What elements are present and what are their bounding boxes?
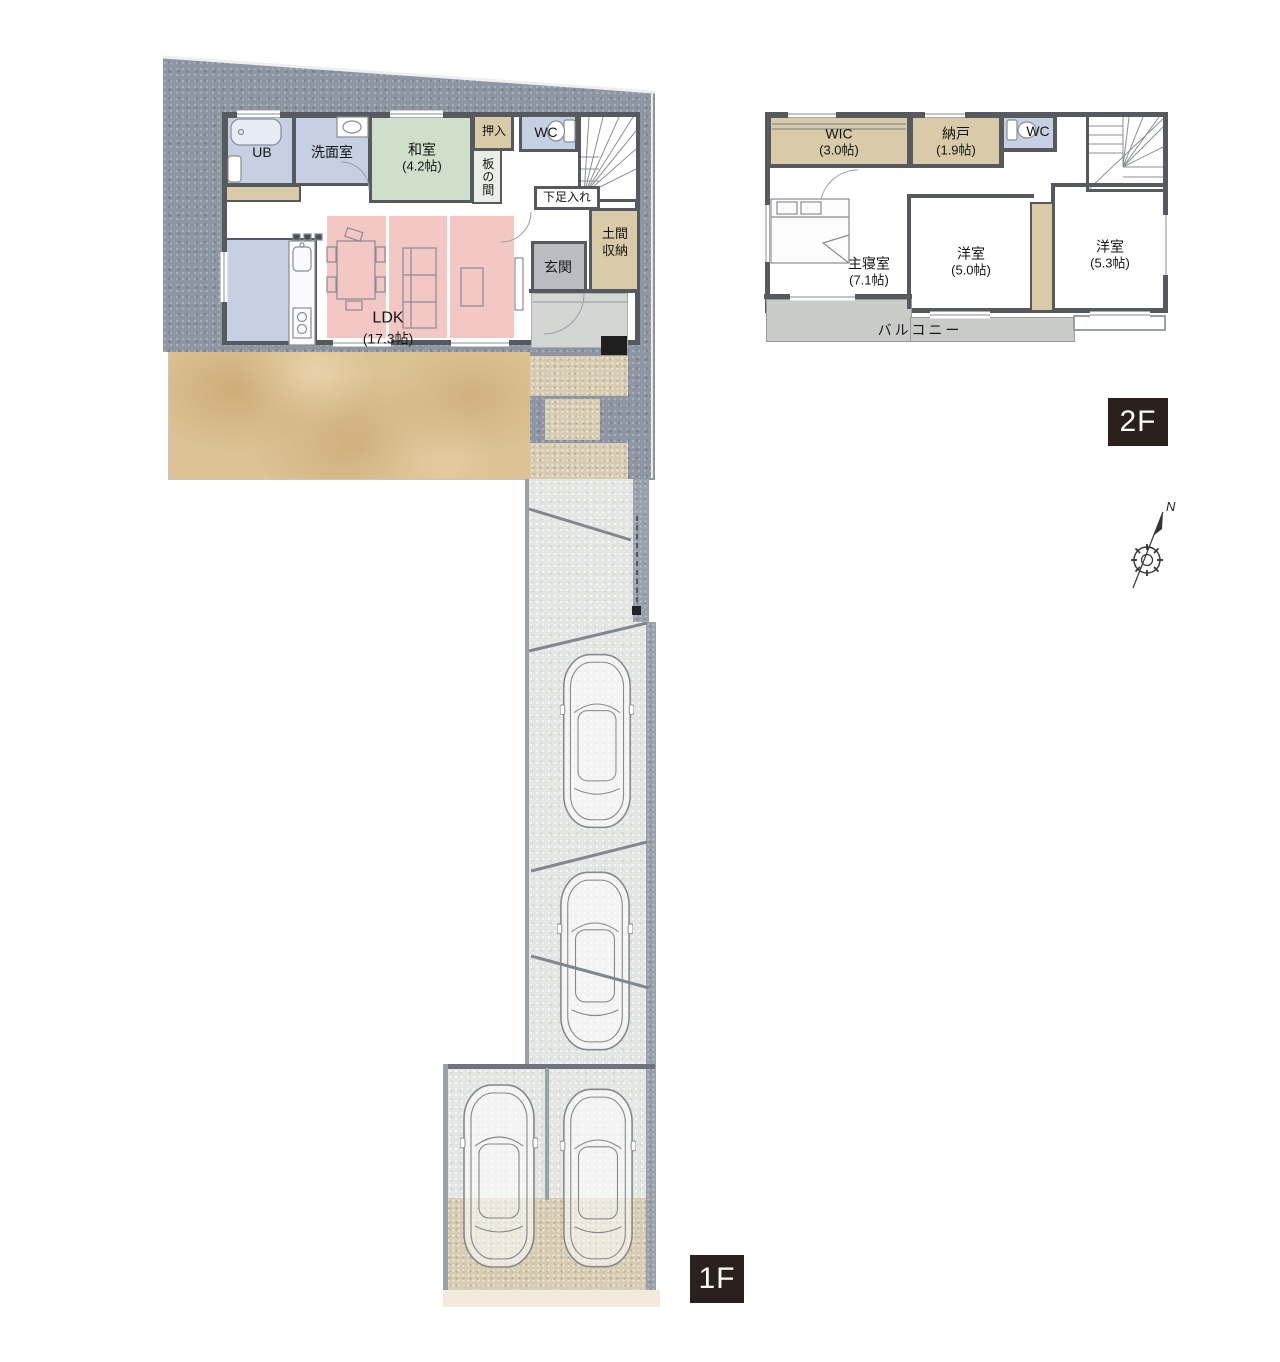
room-label-yoshitsu-b: 洋室(5.3帖) — [1090, 237, 1130, 272]
room-label-yoshitsu-a: 洋室(5.0帖) — [951, 244, 991, 279]
wall — [1001, 148, 1056, 152]
approach-step — [530, 443, 628, 479]
porch-wall — [529, 289, 637, 293]
boundary-strip — [633, 479, 649, 622]
wall — [999, 115, 1003, 168]
sidewalk — [443, 1290, 660, 1307]
car-icon — [560, 1082, 636, 1274]
wall — [768, 164, 1004, 168]
boundary-strip — [646, 622, 656, 1290]
approach-step — [545, 399, 600, 440]
kitchen-floor — [225, 238, 317, 343]
wall — [1051, 183, 1168, 187]
room-label-genkan: 玄関 — [544, 258, 572, 276]
boundary-wall — [525, 479, 529, 1068]
floor-badge-1f: 1F — [690, 1255, 744, 1303]
boundary-wall — [443, 1064, 448, 1290]
compass-icon: N — [1113, 498, 1187, 593]
room-label-senmenshitsu: 洗面室 — [311, 143, 353, 161]
svg-text:N: N — [1166, 499, 1176, 514]
wall — [907, 194, 911, 309]
room-label-ub: UB — [252, 143, 271, 161]
room-label-wic: WIC(3.0帖) — [819, 124, 859, 159]
room-label-oshiire: 押入 — [482, 124, 506, 140]
room-label-wc-2f: WC — [1026, 122, 1049, 140]
wall — [1053, 115, 1057, 152]
porch-post — [601, 336, 627, 355]
room-label-shinshitsu: 主寝室(7.1帖) — [848, 254, 890, 289]
room-label-itanoma: 板の間 — [479, 158, 495, 197]
floorplan-page: UB 洗面室 和室(4.2帖) 押入 WC 板の間 下足入れ 土間収納 玄関 L… — [0, 0, 1280, 1362]
car-icon — [560, 645, 634, 837]
room-label-shitasokuire: 下足入れ — [543, 190, 591, 206]
room-label-ldk: LDK(17.3帖) — [363, 309, 414, 348]
wall — [907, 194, 1034, 198]
garden-area — [168, 352, 530, 480]
stairs-icon — [1089, 117, 1163, 189]
wall — [907, 115, 911, 168]
room-label-balcony: バルコニー — [878, 321, 963, 339]
driveway — [528, 479, 633, 622]
car-icon — [557, 865, 633, 1057]
closet-2f — [1030, 202, 1054, 312]
room-label-nando: 納戸(1.9帖) — [936, 124, 976, 159]
stairs-2f — [1086, 114, 1166, 192]
ldk-rug — [450, 216, 514, 338]
car-icon — [460, 1080, 538, 1272]
boundary-wall — [443, 1064, 655, 1069]
stall-divider — [545, 1068, 549, 1200]
room-label-domashuno: 土間収納 — [600, 226, 630, 260]
room-label-washitsu: 和室(4.2帖) — [402, 140, 442, 175]
room-label-wc-1f: WC — [534, 123, 557, 141]
floor-badge-2f: 2F — [1108, 398, 1168, 446]
wall — [764, 294, 912, 299]
balcony-rail — [1073, 315, 1166, 331]
approach-step — [530, 356, 628, 396]
cabinet-1f — [225, 185, 301, 202]
